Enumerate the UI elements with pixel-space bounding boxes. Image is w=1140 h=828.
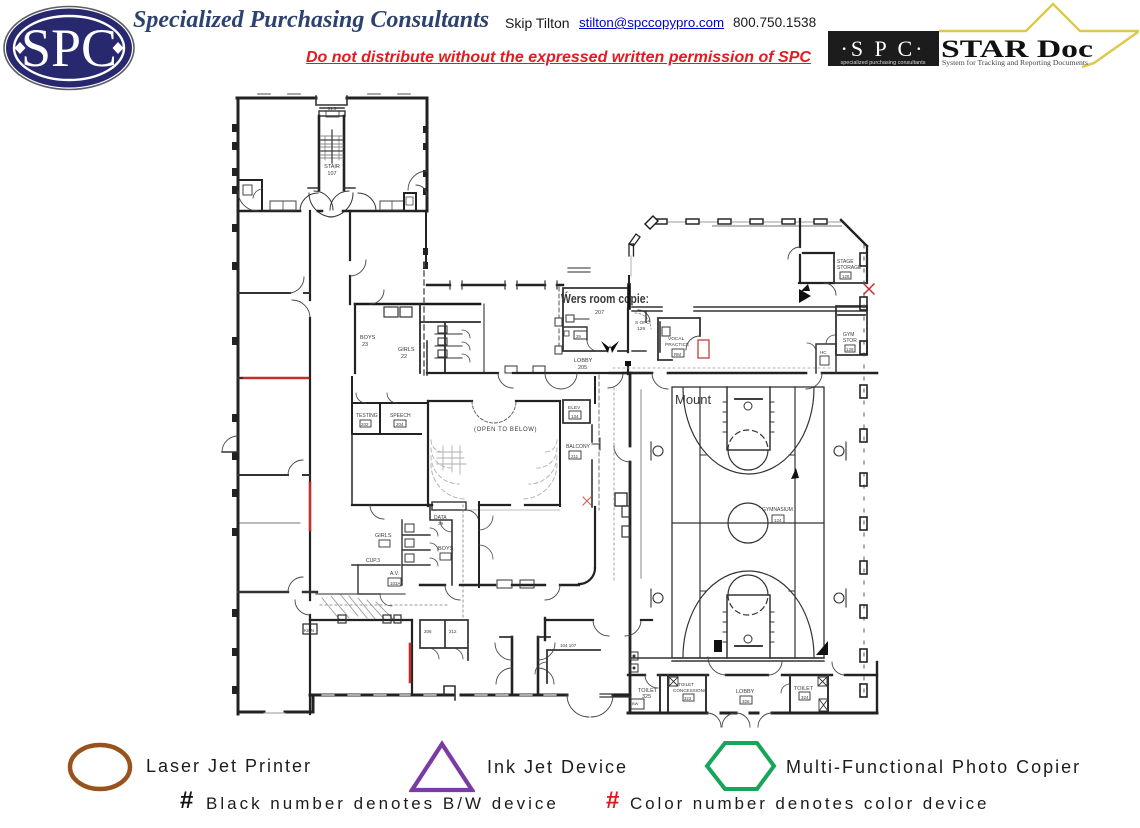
- svg-text:GIRLS: GIRLS: [375, 533, 392, 539]
- svg-text:104 107: 104 107: [560, 643, 577, 648]
- svg-text:107: 107: [327, 171, 336, 177]
- svg-text:BALCONY: BALCONY: [566, 444, 591, 450]
- svg-text:126: 126: [842, 274, 850, 279]
- svg-text:STORAGE: STORAGE: [837, 265, 862, 271]
- svg-text:BW: BW: [632, 701, 639, 706]
- svg-text:LOBBY: LOBBY: [574, 358, 593, 364]
- svg-text:202: 202: [361, 422, 369, 427]
- svg-text:A.V.: A.V.: [390, 571, 399, 577]
- svg-text:TOILET: TOILET: [678, 682, 694, 687]
- svg-text:134: 134: [571, 414, 579, 419]
- svg-text:SPEECH: SPEECH: [390, 413, 411, 419]
- svg-text:PRACTICE: PRACTICE: [665, 342, 689, 348]
- svg-text:ELEV: ELEV: [568, 405, 581, 411]
- svg-text:S OFC: S OFC: [635, 320, 650, 326]
- svg-text:CONCESSIONS: CONCESSIONS: [673, 688, 707, 693]
- svg-text:129: 129: [637, 326, 645, 332]
- svg-text:211: 211: [571, 454, 579, 459]
- svg-text:BOYS: BOYS: [360, 335, 376, 341]
- svg-text:205: 205: [578, 365, 587, 371]
- svg-text:22: 22: [401, 354, 407, 360]
- svg-text:212: 212: [449, 629, 457, 634]
- svg-text:BOYS: BOYS: [438, 546, 454, 552]
- svg-text:LOBBY: LOBBY: [736, 689, 755, 695]
- svg-text:KILN: KILN: [304, 628, 314, 633]
- svg-text:323: 323: [684, 696, 692, 701]
- svg-text:HC: HC: [820, 350, 827, 355]
- svg-text:STOR: STOR: [843, 338, 857, 344]
- svg-text:(OPEN TO BELOW): (OPEN TO BELOW): [474, 427, 537, 433]
- svg-text:GYMNASIUM: GYMNASIUM: [762, 507, 793, 513]
- svg-text:STAIR: STAIR: [324, 164, 340, 170]
- svg-text:TOILET: TOILET: [794, 686, 814, 692]
- svg-text:128: 128: [846, 347, 854, 352]
- svg-text:Mount: Mount: [675, 392, 712, 407]
- svg-text:207: 207: [595, 310, 604, 316]
- svg-text:124: 124: [774, 518, 782, 523]
- svg-text:204: 204: [396, 422, 404, 427]
- svg-text:VOCAL: VOCAL: [668, 336, 685, 342]
- svg-text:29: 29: [576, 334, 581, 339]
- svg-text:23: 23: [362, 342, 368, 348]
- svg-text:326: 326: [742, 699, 750, 704]
- svg-text:RM: RM: [674, 352, 681, 357]
- svg-text:CUP.3: CUP.3: [366, 558, 380, 564]
- svg-text:TESTING: TESTING: [356, 413, 378, 419]
- svg-text:Ẃers room copieː: Ẃers room copieː: [561, 291, 649, 306]
- svg-text:GIRLS: GIRLS: [398, 347, 415, 353]
- svg-text:31.5: 31.5: [328, 106, 337, 111]
- svg-text:103A: 103A: [390, 581, 401, 586]
- svg-text:324: 324: [801, 695, 809, 700]
- svg-text:206: 206: [424, 629, 432, 634]
